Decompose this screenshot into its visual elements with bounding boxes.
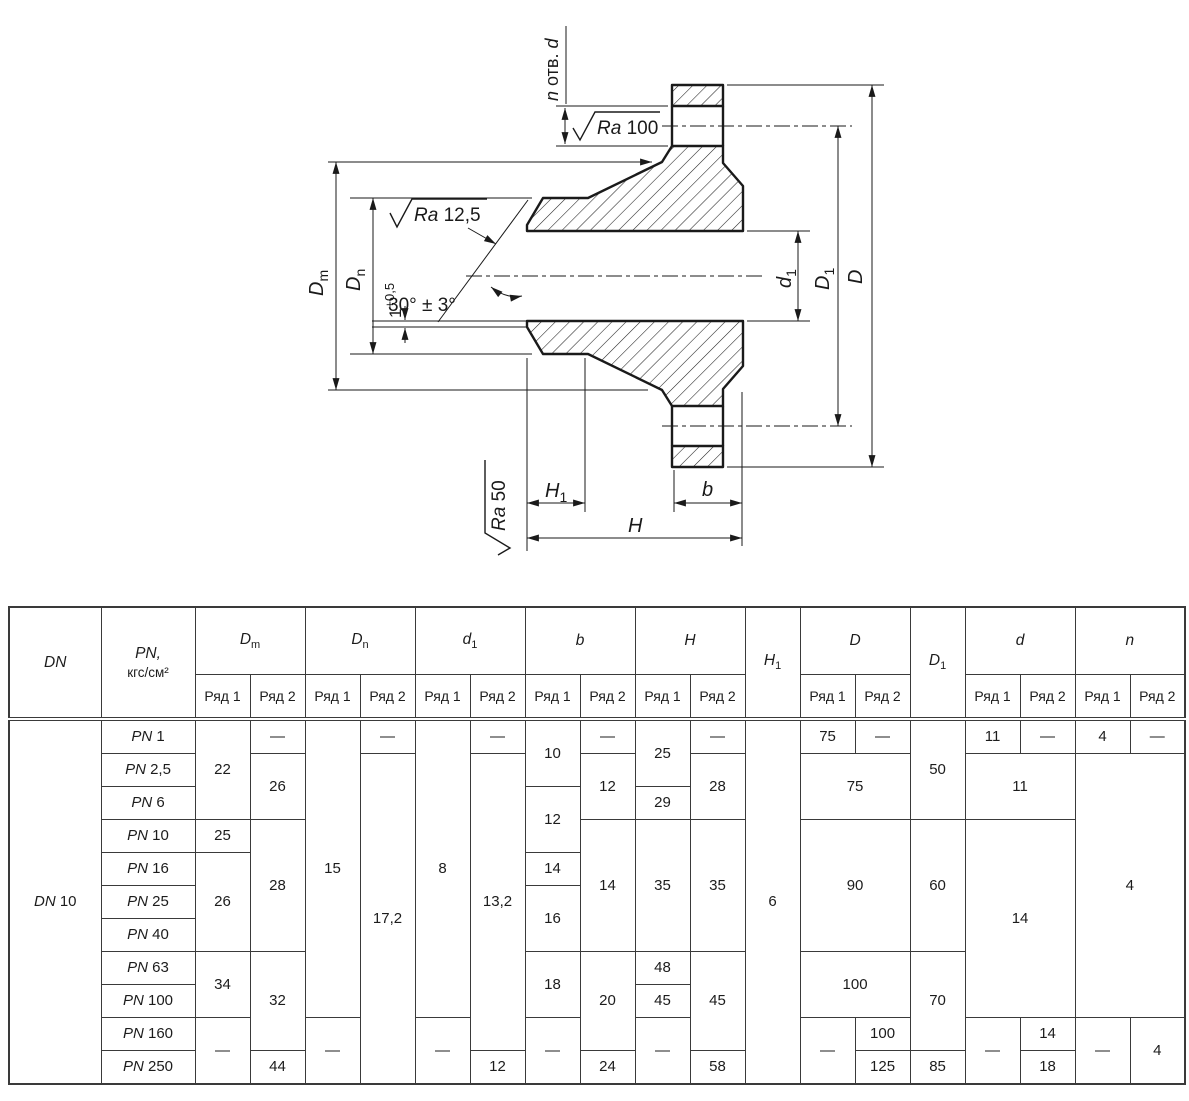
subcolumn-header: Ряд 2	[855, 675, 910, 720]
table-cell: PN 16	[101, 853, 195, 886]
table-cell: 24	[580, 1051, 635, 1085]
page: Ra 100 Ra 12,5 Ra 50 Dm Dn 1+0,5 30° ± 3…	[0, 0, 1189, 1101]
table-cell: 15	[305, 719, 360, 1018]
table-cell: 20	[580, 952, 635, 1051]
table-row: PN 102528143535906014	[9, 820, 1185, 853]
table-cell: 90	[800, 820, 910, 952]
subcolumn-header: Ряд 2	[470, 675, 525, 720]
column-header: b	[525, 607, 635, 675]
table-cell: 4	[1075, 754, 1185, 1018]
subcolumn-header: Ряд 1	[800, 675, 855, 720]
subcolumn-header: Ряд 1	[1075, 675, 1130, 720]
column-header: H1	[745, 607, 800, 719]
table-cell: PN 160	[101, 1018, 195, 1051]
table-cell: 28	[690, 754, 745, 820]
table-cell: 4	[1130, 1018, 1185, 1085]
lower-section	[527, 321, 743, 406]
label-n-holes: n отв. d	[542, 38, 562, 101]
table-cell: 45	[690, 952, 745, 1051]
table-cell: —	[195, 1018, 250, 1085]
table-cell: 13,2	[470, 754, 525, 1051]
label-angle: 30° ± 3°	[388, 295, 456, 316]
table-cell: 8	[415, 719, 470, 1018]
table-cell: 75	[800, 719, 855, 754]
bolt-hole-cap-top	[672, 85, 723, 106]
table-cell: PN 6	[101, 787, 195, 820]
table-cell: 34	[195, 952, 250, 1018]
table-row: PN 2,52617,213,2122875114	[9, 754, 1185, 787]
table-cell: 58	[690, 1051, 745, 1085]
table-cell: 35	[635, 820, 690, 952]
svg-text:Ra 50: Ra 50	[489, 480, 510, 531]
flange-dimensions-table: DNPN,кгс/см²DmDnd1bHH1DD1dnРяд 1Ряд 2Ряд…	[8, 606, 1186, 1085]
ra125-leader	[468, 228, 496, 244]
label-d1: d1	[774, 269, 799, 288]
table-header: DNPN,кгс/см²DmDnd1bHH1DD1dnРяд 1Ряд 2Ряд…	[9, 607, 1185, 719]
subcolumn-header: Ряд 1	[415, 675, 470, 720]
table-cell: PN 63	[101, 952, 195, 985]
table-cell: 11	[965, 754, 1075, 820]
subcolumn-header: Ряд 2	[1020, 675, 1075, 720]
table-cell: PN 10	[101, 820, 195, 853]
column-header: d1	[415, 607, 525, 675]
table-cell: 26	[250, 754, 305, 820]
table-cell: —	[360, 719, 415, 754]
table-cell: 100	[800, 952, 910, 1018]
table-cell: —	[1020, 719, 1075, 754]
table-cell: —	[415, 1018, 470, 1085]
subcolumn-header: Ряд 1	[305, 675, 360, 720]
table-cell: —	[250, 719, 305, 754]
table-cell: 70	[910, 952, 965, 1051]
table-cell: PN 2,5	[101, 754, 195, 787]
table-cell: 25	[635, 719, 690, 787]
table-cell: —	[305, 1018, 360, 1085]
label-H1: H1	[545, 480, 567, 505]
table-row: DN 10PN 122—15—8—10—25—675—5011—4—	[9, 719, 1185, 754]
table-cell: 16	[525, 886, 580, 952]
column-header: PN,кгс/см²	[101, 607, 195, 719]
table-cell: —	[580, 719, 635, 754]
table-cell: PN 40	[101, 919, 195, 952]
table-cell: 14	[525, 853, 580, 886]
column-header: D	[800, 607, 910, 675]
label-dn: Dn	[343, 269, 368, 291]
column-header: n	[1075, 607, 1185, 675]
table-cell: —	[855, 719, 910, 754]
table-cell: PN 1	[101, 719, 195, 754]
table-cell: 25	[195, 820, 250, 853]
table-cell: 28	[250, 820, 305, 952]
subcolumn-header: Ряд 2	[690, 675, 745, 720]
dimension-labels: Dm Dn 1+0,5 30° ± 3° n отв. d d1 D1 D H1…	[306, 38, 867, 537]
subcolumn-header: Ряд 1	[635, 675, 690, 720]
table-cell: 12	[470, 1051, 525, 1085]
table-cell: 75	[800, 754, 910, 820]
subcolumn-header: Ряд 2	[580, 675, 635, 720]
column-header: d	[965, 607, 1075, 675]
table-cell: 4	[1075, 719, 1130, 754]
label-b: b	[702, 479, 713, 501]
table-cell: PN 250	[101, 1051, 195, 1085]
label-D: D	[845, 270, 867, 284]
table-cell: 60	[910, 820, 965, 952]
table-cell: 35	[690, 820, 745, 952]
table-cell: 32	[250, 952, 305, 1051]
table-cell: —	[800, 1018, 855, 1085]
table-cell: 48	[635, 952, 690, 985]
table-cell: —	[470, 719, 525, 754]
table-cell: DN 10	[9, 719, 101, 1084]
table-cell: PN 100	[101, 985, 195, 1018]
table-cell: PN 25	[101, 886, 195, 919]
ra100-mark: Ra 100	[573, 112, 660, 140]
table-cell: 100	[855, 1018, 910, 1051]
column-header: D1	[910, 607, 965, 719]
table-cell: 14	[580, 820, 635, 952]
column-header: Dn	[305, 607, 415, 675]
table-cell: 14	[1020, 1018, 1075, 1051]
upper-section	[527, 146, 743, 231]
table-cell: 18	[525, 952, 580, 1018]
table-cell: 44	[250, 1051, 305, 1085]
table-cell: 50	[910, 719, 965, 820]
table-body: DN 10PN 122—15—8—10—25—675—5011—4—PN 2,5…	[9, 719, 1185, 1084]
table-cell: 14	[965, 820, 1075, 1018]
column-header: H	[635, 607, 745, 675]
table-cell: 6	[745, 719, 800, 1084]
table-cell: 12	[525, 787, 580, 853]
table-cell: 125	[855, 1051, 910, 1085]
column-header: Dm	[195, 607, 305, 675]
subcolumn-header: Ряд 1	[965, 675, 1020, 720]
subcolumn-header: Ряд 2	[1130, 675, 1185, 720]
angle-arc-arrow	[491, 287, 522, 297]
bolt-hole-cap-bottom	[672, 446, 723, 467]
label-D1: D1	[812, 268, 837, 290]
table-cell: 12	[580, 754, 635, 820]
table-cell: —	[525, 1018, 580, 1085]
table-cell: 26	[195, 853, 250, 952]
extension-lines	[328, 26, 884, 551]
table-cell: 85	[910, 1051, 965, 1085]
ra125-mark: Ra 12,5	[390, 199, 487, 227]
table-cell: —	[690, 719, 745, 754]
table-cell: —	[965, 1018, 1020, 1085]
table-cell: 45	[635, 985, 690, 1018]
table-cell: —	[635, 1018, 690, 1085]
subcolumn-header: Ряд 2	[250, 675, 305, 720]
subcolumn-header: Ряд 1	[525, 675, 580, 720]
svg-text:Ra 100: Ra 100	[597, 118, 658, 139]
column-header: DN	[9, 607, 101, 719]
table-cell: 11	[965, 719, 1020, 754]
label-H: H	[628, 515, 643, 537]
table-cell: 18	[1020, 1051, 1075, 1085]
table-cell: —	[1130, 719, 1185, 754]
table-cell: 10	[525, 719, 580, 787]
ra50-mark: Ra 50	[485, 460, 510, 555]
table-cell: —	[1075, 1018, 1130, 1085]
table-wrapper: DNPN,кгс/см²DmDnd1bHH1DD1dnРяд 1Ряд 2Ряд…	[8, 606, 1186, 1085]
table-cell: 17,2	[360, 754, 415, 1085]
label-dm: Dm	[306, 270, 331, 296]
svg-text:Ra 12,5: Ra 12,5	[414, 205, 481, 226]
table-cell: 29	[635, 787, 690, 820]
subcolumn-header: Ряд 1	[195, 675, 250, 720]
table-cell: 22	[195, 719, 250, 820]
subcolumn-header: Ряд 2	[360, 675, 415, 720]
flange-section-drawing: Ra 100 Ra 12,5 Ra 50 Dm Dn 1+0,5 30° ± 3…	[0, 0, 1189, 578]
